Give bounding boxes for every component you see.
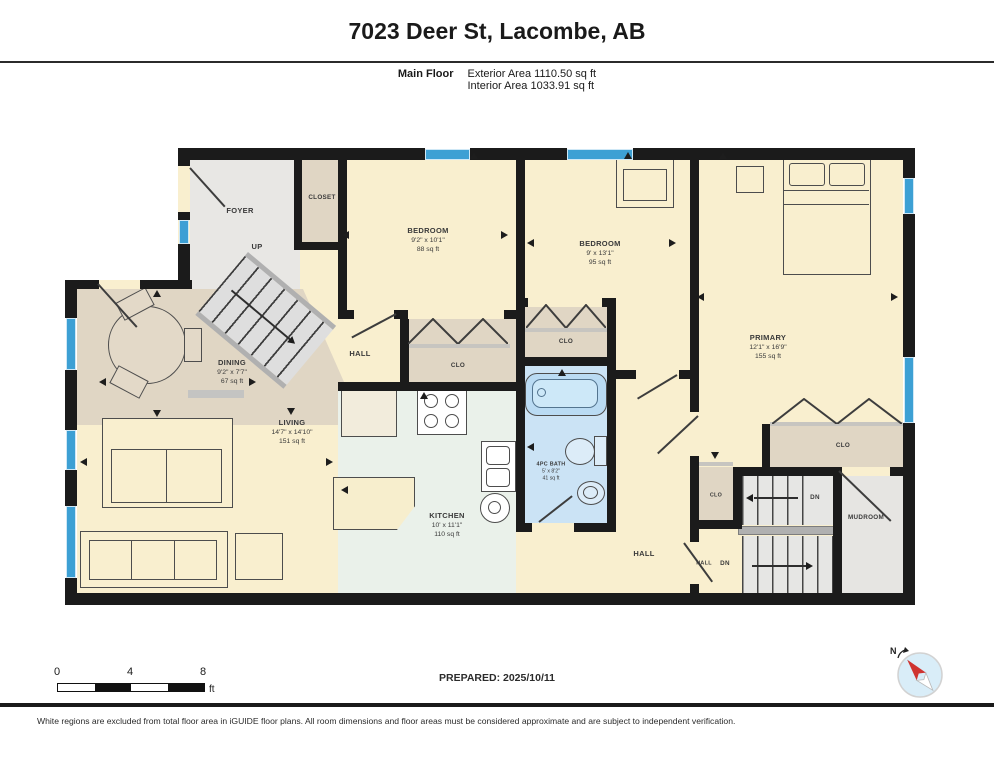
room-dims: 5' x 8'2": [537, 469, 566, 476]
label-dn-upper: DN: [810, 494, 820, 503]
scale-segment: [168, 684, 205, 691]
room-dims: 10' x 11'1": [429, 521, 464, 530]
floor-summary: Main Floor Exterior Area 1110.50 sq ft I…: [0, 68, 994, 92]
dimension-arrow: [99, 378, 106, 386]
wall-segment: [699, 520, 742, 529]
dn-arrow-head: [806, 562, 813, 570]
room-label-bedroom2: BEDROOM 9' x 13'1" 95 sq ft: [579, 239, 620, 267]
room-name: BEDROOM: [579, 239, 620, 249]
window: [904, 357, 914, 423]
room-area: 88 sq ft: [407, 245, 448, 254]
wall-segment: [733, 467, 835, 476]
wall-segment: [690, 148, 699, 412]
wall-segment: [140, 280, 192, 289]
dimension-arrow: [80, 458, 87, 466]
side-table: [235, 533, 283, 580]
dimension-arrow: [527, 443, 534, 451]
dimension-arrow: [527, 239, 534, 247]
bed-pillow: [789, 163, 825, 186]
wall-segment: [607, 298, 616, 532]
room-label-bath: 4PC BATH 5' x 8'2" 41 sq ft: [537, 461, 566, 482]
closet-sill: [406, 344, 510, 348]
wall-segment: [65, 593, 915, 605]
room-dims: 9' x 13'1": [579, 249, 620, 258]
wall-segment: [903, 148, 915, 178]
room-area: 151 sq ft: [271, 437, 312, 446]
room-dims: 9'2" x 7'7": [217, 368, 247, 377]
wall-segment: [516, 523, 532, 532]
wall-segment: [178, 148, 190, 166]
scale-segment: [95, 684, 132, 691]
room-name: LIVING: [271, 418, 312, 428]
wall-segment: [833, 467, 842, 593]
scale-bar: [57, 683, 205, 692]
window: [179, 220, 189, 244]
dimension-arrow: [326, 458, 333, 466]
kitchen-sink: [481, 441, 516, 492]
stove-burner: [445, 414, 459, 428]
exterior-notch: [60, 140, 178, 280]
dimension-arrow: [719, 152, 727, 159]
room-label-living: LIVING 14'7" x 14'10" 151 sq ft: [271, 418, 312, 446]
label-hall-right: HALL: [633, 549, 654, 559]
dimension-arrow: [891, 293, 898, 301]
dimension-arrow: [342, 231, 349, 239]
floor-label: Main Floor: [398, 68, 454, 92]
wall-segment: [616, 370, 636, 379]
room-label-foyer: FOYER: [226, 206, 253, 216]
wall-segment: [338, 382, 516, 391]
room-dims: 9'2" x 10'1": [407, 236, 448, 245]
sofa-cushion-divider: [174, 540, 175, 580]
compass-north-label: N: [890, 646, 897, 656]
bath-sink: [577, 481, 605, 505]
floor-mudroom: [842, 476, 903, 593]
room-area: 67 sq ft: [217, 377, 247, 386]
wall-segment: [633, 148, 915, 160]
room-name: PRIMARY: [749, 333, 786, 343]
disclaimer-text: White regions are excluded from total fl…: [37, 716, 735, 726]
dn-arrow-shaft: [754, 497, 798, 499]
room-dims: 14'7" x 14'10": [271, 428, 312, 437]
room-name: 4PC BATH: [537, 461, 566, 468]
wall-segment: [65, 280, 99, 289]
room-area: 41 sq ft: [537, 476, 566, 483]
closet-bifold-doors-icon: [526, 304, 606, 328]
dimension-arrow: [697, 293, 704, 301]
label-hall-stairs: HALL: [696, 560, 712, 567]
wall-segment: [574, 523, 616, 532]
wall-segment: [178, 148, 425, 160]
window: [425, 149, 470, 160]
wall-segment: [516, 148, 525, 530]
label-dn-lower: DN: [720, 560, 730, 569]
dimension-arrow: [420, 392, 428, 399]
bed-blanket-line: [784, 190, 869, 191]
dimension-arrow: [153, 290, 161, 297]
dn-arrow-shaft: [752, 565, 808, 567]
wall-segment: [65, 578, 77, 605]
window: [66, 318, 76, 370]
armchair: [616, 157, 674, 208]
closet-bifold-doors-icon: [408, 318, 508, 344]
wall-segment: [762, 424, 770, 467]
room-name: FOYER: [226, 206, 253, 216]
scale-unit: ft: [209, 684, 215, 695]
closet-sill: [699, 462, 733, 466]
room-label-closet: CLOSET: [308, 194, 335, 203]
label-clo-bedroom1: CLO: [451, 362, 465, 371]
label-clo-hall: CLO: [710, 492, 722, 499]
stove-burner: [424, 414, 438, 428]
dimension-arrow: [558, 369, 566, 376]
wall-segment: [338, 148, 347, 310]
toilet-bowl: [565, 438, 595, 465]
page-title: 7023 Deer St, Lacombe, AB: [0, 18, 994, 45]
dimension-arrow: [470, 152, 478, 159]
label-clo-bedroom2: CLO: [559, 338, 573, 347]
bed-pillow: [829, 163, 865, 186]
label-up: UP: [251, 242, 262, 252]
nightstand: [736, 166, 764, 193]
room-area: 95 sq ft: [579, 258, 620, 267]
fridge: [341, 390, 397, 437]
wall-segment: [679, 370, 690, 379]
bed: [783, 157, 871, 275]
label-clo-primary: CLO: [836, 442, 850, 451]
loveseat: [102, 418, 233, 508]
sink-basin: [486, 468, 510, 487]
room-label-bedroom1: BEDROOM 9'2" x 10'1" 88 sq ft: [407, 226, 448, 254]
prep-sink: [480, 493, 510, 523]
foyer-threshold: [188, 390, 244, 398]
toilet-tank: [594, 436, 607, 466]
dimension-arrow: [711, 452, 719, 459]
label-hall-center: HALL: [349, 349, 370, 359]
room-name: CLOSET: [308, 194, 335, 203]
wall-segment: [178, 212, 190, 220]
window: [66, 506, 76, 578]
wall-segment: [890, 467, 915, 476]
window: [66, 430, 76, 470]
sink-basin: [486, 446, 510, 465]
compass-icon: N: [888, 642, 948, 702]
stairs-landing: [738, 526, 837, 535]
room-area: 110 sq ft: [429, 530, 464, 539]
wall-segment: [65, 470, 77, 506]
wall-segment: [516, 357, 616, 366]
sofa-seat: [89, 540, 217, 580]
wall-segment: [338, 310, 354, 319]
footer-divider: [0, 703, 994, 707]
closet-bifold-doors-icon: [772, 398, 902, 424]
window: [904, 178, 914, 214]
wall-segment: [65, 370, 77, 430]
armchair-seat: [623, 169, 667, 201]
loveseat-cushion-divider: [166, 449, 167, 503]
wall-segment: [690, 456, 699, 542]
dimension-arrow: [287, 408, 295, 415]
room-label-mudroom: MUDROOM: [848, 514, 884, 523]
room-dims: 12'1" x 16'9": [749, 343, 786, 352]
room-name: BEDROOM: [407, 226, 448, 236]
stove-burner: [445, 394, 459, 408]
room-name: MUDROOM: [848, 514, 884, 523]
kitchen-island: [333, 477, 415, 530]
sofa: [80, 531, 228, 588]
closet-sill: [524, 328, 610, 332]
room-name: DINING: [217, 358, 247, 368]
bathtub-drain: [537, 388, 546, 397]
dimension-arrow: [501, 231, 508, 239]
bed-blanket-line: [784, 204, 869, 205]
sofa-cushion-divider: [131, 540, 132, 580]
header-divider: [0, 61, 994, 63]
stairs-arrow-shaft: [231, 290, 292, 342]
floor-areas: Exterior Area 1110.50 sq ft Interior Are…: [467, 68, 596, 92]
room-label-dining: DINING 9'2" x 7'7" 67 sq ft: [217, 358, 247, 386]
dimension-arrow: [669, 239, 676, 247]
wall-segment: [294, 160, 302, 244]
room-label-kitchen: KITCHEN 10' x 11'1" 110 sq ft: [429, 511, 464, 539]
dimension-arrow: [249, 378, 256, 386]
room-area: 155 sq ft: [749, 352, 786, 361]
dimension-arrow: [341, 486, 348, 494]
exterior-area: Exterior Area 1110.50 sq ft: [467, 68, 596, 80]
room-label-primary: PRIMARY 12'1" x 16'9" 155 sq ft: [749, 333, 786, 361]
bath-sink-basin: [583, 486, 598, 499]
interior-area: Interior Area 1033.91 sq ft: [467, 80, 596, 92]
room-name: KITCHEN: [429, 511, 464, 521]
wall-segment: [903, 214, 915, 357]
dimension-arrow: [153, 410, 161, 417]
bathtub: [525, 373, 607, 416]
scale-segment: [131, 684, 168, 691]
dining-chair: [184, 328, 202, 362]
dimension-arrow: [624, 152, 632, 159]
prep-sink-basin: [488, 501, 501, 514]
dn-arrow-head: [746, 494, 753, 502]
wall-segment: [903, 423, 915, 605]
wall-segment: [690, 584, 699, 605]
scale-segment: [58, 684, 95, 691]
